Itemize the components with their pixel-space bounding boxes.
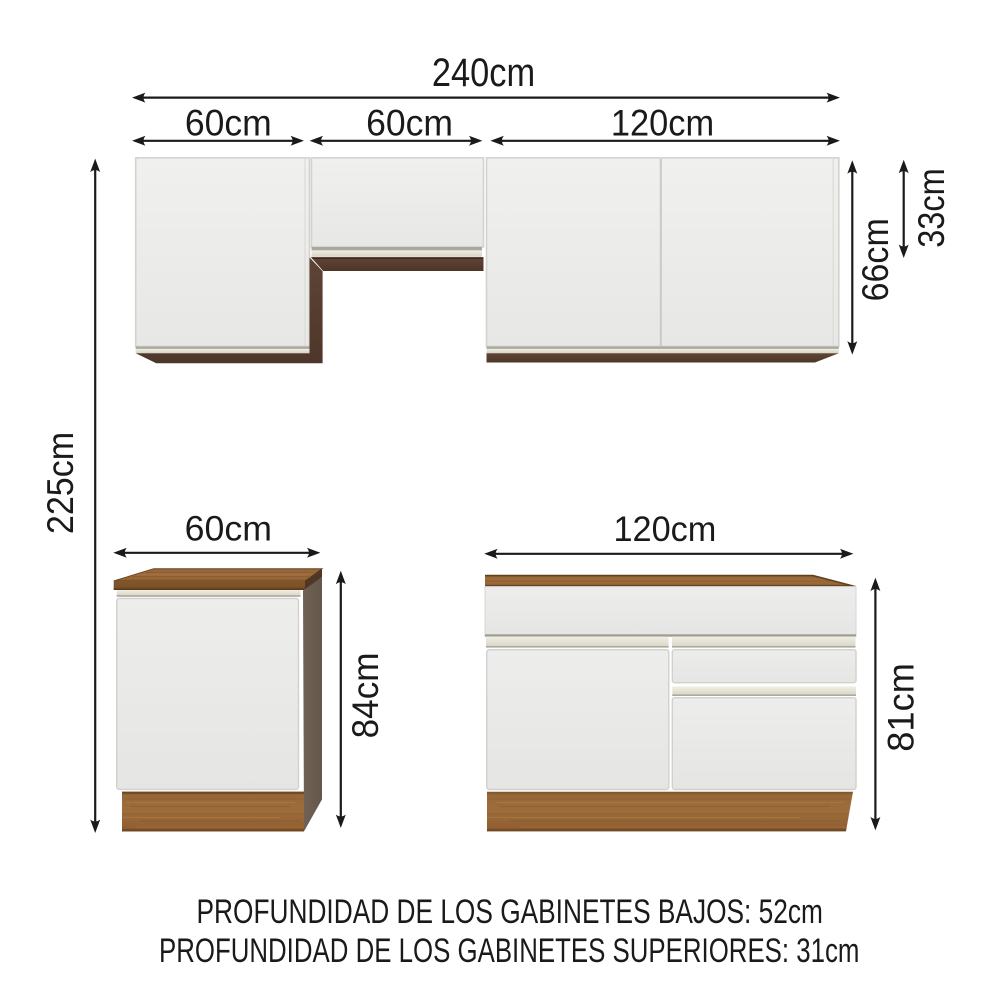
svg-text:PROFUNDIDAD DE LOS GABINETES B: PROFUNDIDAD DE LOS GABINETES BAJOS: 52cm bbox=[197, 893, 823, 931]
svg-text:60cm: 60cm bbox=[366, 102, 453, 144]
svg-text:120cm: 120cm bbox=[613, 510, 716, 548]
svg-text:60cm: 60cm bbox=[185, 510, 272, 549]
svg-text:84cm: 84cm bbox=[344, 652, 386, 738]
svg-text:PROFUNDIDAD DE LOS GABINETES S: PROFUNDIDAD DE LOS GABINETES SUPERIORES:… bbox=[159, 931, 859, 969]
svg-text:66cm: 66cm bbox=[855, 218, 897, 301]
svg-text:240cm: 240cm bbox=[432, 50, 535, 95]
svg-text:120cm: 120cm bbox=[611, 102, 714, 143]
svg-text:60cm: 60cm bbox=[185, 102, 272, 144]
svg-text:81cm: 81cm bbox=[880, 663, 921, 752]
svg-text:225cm: 225cm bbox=[40, 432, 82, 534]
svg-text:33cm: 33cm bbox=[911, 168, 952, 248]
